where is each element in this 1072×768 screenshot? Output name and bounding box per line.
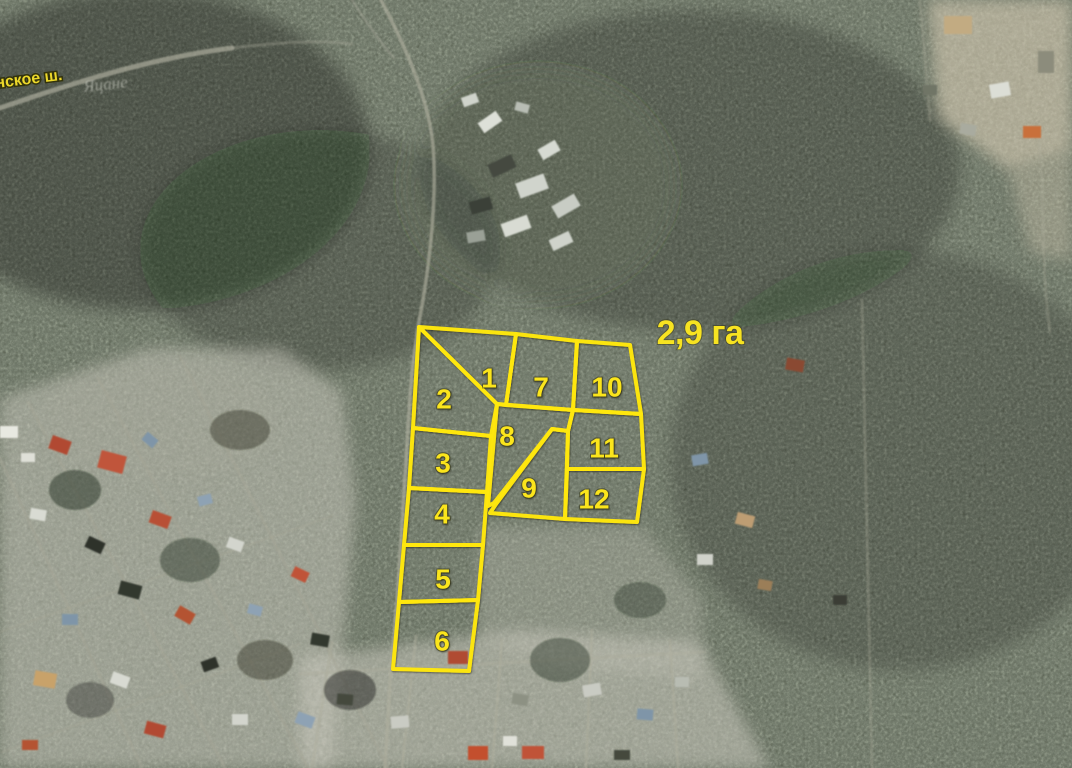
plot-number-2: 2 bbox=[436, 384, 452, 415]
plot-number-11: 11 bbox=[589, 433, 619, 464]
building-roof bbox=[1038, 51, 1054, 73]
tree-cluster bbox=[614, 582, 666, 618]
building-roof bbox=[337, 693, 354, 705]
building-roof bbox=[22, 740, 38, 750]
building-roof bbox=[62, 614, 78, 625]
tree-cluster bbox=[237, 640, 293, 680]
plot-number-7: 7 bbox=[533, 372, 549, 403]
tree-cluster bbox=[210, 410, 270, 450]
building-roof bbox=[468, 746, 488, 760]
building-roof bbox=[923, 85, 937, 95]
plot-number-8: 8 bbox=[499, 421, 515, 452]
building-roof bbox=[637, 708, 654, 720]
satellite-screenshot: 123456789101112 2,9 га нское ш. Яцане bbox=[0, 0, 1072, 768]
building-roof bbox=[944, 16, 972, 34]
plot-number-1: 1 bbox=[481, 363, 497, 394]
plot-number-9: 9 bbox=[521, 473, 537, 504]
building-roof bbox=[232, 714, 248, 725]
building-roof bbox=[503, 736, 517, 746]
tree-cluster bbox=[530, 638, 590, 682]
building-roof bbox=[614, 750, 630, 760]
building-roof bbox=[522, 746, 544, 759]
satellite-map: 123456789101112 2,9 га нское ш. Яцане bbox=[0, 0, 1072, 768]
tree-cluster bbox=[160, 538, 220, 582]
tree-cluster bbox=[66, 682, 114, 718]
tree-cluster bbox=[49, 470, 101, 510]
building-roof bbox=[675, 677, 689, 687]
plot-number-3: 3 bbox=[435, 448, 451, 479]
building-roof bbox=[1023, 126, 1041, 138]
plot-number-12: 12 bbox=[578, 484, 609, 515]
plot-number-10: 10 bbox=[591, 372, 622, 403]
plot-number-6: 6 bbox=[434, 626, 450, 657]
plot-number-5: 5 bbox=[435, 564, 451, 595]
building-roof bbox=[833, 595, 847, 605]
building-roof bbox=[391, 715, 410, 729]
building-roof bbox=[448, 651, 468, 664]
plot-number-4: 4 bbox=[434, 499, 450, 530]
area-size-label: 2,9 га bbox=[657, 314, 745, 352]
building-roof bbox=[0, 426, 18, 438]
building-roof bbox=[21, 453, 35, 462]
building-roof bbox=[697, 554, 713, 565]
